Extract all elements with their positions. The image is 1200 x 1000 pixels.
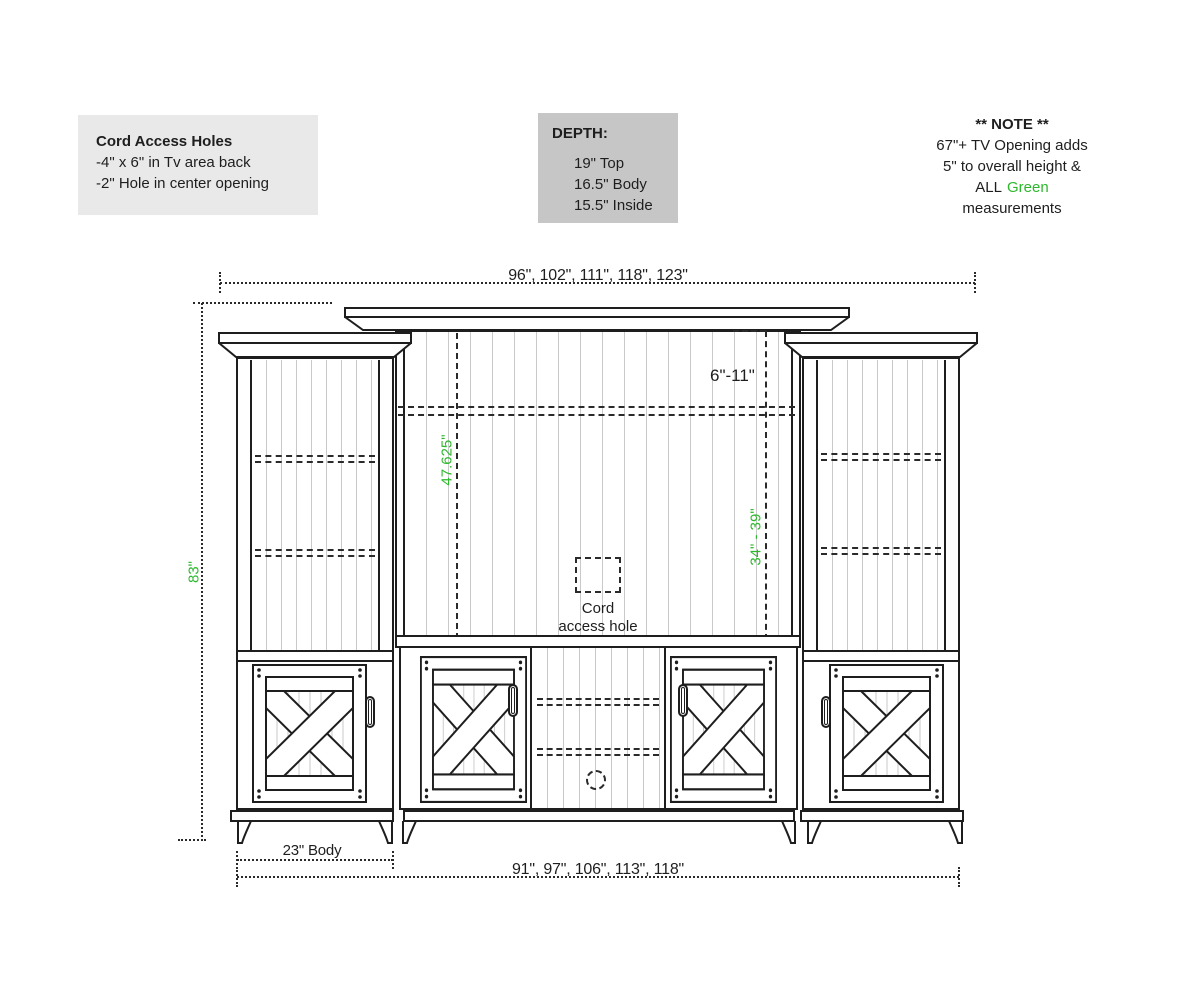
bridge-light-glow-left [434,332,550,390]
note-line-3: ALLGreen [900,177,1124,198]
dim-body-label: 23" Body [283,842,342,860]
depth-note-box: DEPTH: 19" Top 16.5" Body 15.5" Inside [538,113,678,223]
right-tower-barn-door [829,664,944,803]
dim-height-top-connector [193,302,332,304]
depth-line-1: 19" Top [574,153,664,174]
depth-line-3: 15.5" Inside [574,195,664,216]
right-tower-left-foot [807,821,822,844]
center-left-foot [402,821,417,844]
dim-tv-range-line [765,331,767,640]
center-base-rail [403,810,795,822]
center-shelf-dashed-1 [537,698,659,706]
right-tower-crown-molding [784,332,978,359]
entertainment-center-diagram: Cord Access Holes -4" x 6" in Tv area ba… [0,0,1200,1000]
note-line-1: 67"+ TV Opening adds [900,135,1124,156]
cord-access-hole-label-line2: access hole [558,618,637,636]
left-tower-crown-molding [218,332,412,359]
right-tower-shelf-dashed-2 [821,547,941,555]
left-tower-shelf-dashed-1 [255,455,375,463]
dim-top-width-tick-right [974,272,976,293]
dim-tv-opening-height-label: 47.625" [439,434,456,485]
cord-access-hole-label-line1: Cord [558,600,637,618]
center-left-door-handle [508,684,518,717]
center-right-barn-door [670,656,777,803]
dim-tv-range-top-tick [733,330,766,332]
left-tower-shelf-dashed-2 [255,549,375,557]
left-tower-base-rail [230,810,394,822]
left-tower-barn-door [252,664,367,803]
right-tower-light-glow [834,360,922,412]
center-right-door-handle [678,684,688,717]
note-line-3-green: Green [1007,179,1049,196]
tv-opening-note-block: ** NOTE ** 67"+ TV Opening adds 5" to ov… [900,114,1124,219]
dim-height-bottom-connector [178,839,206,841]
cord-access-line-2: -2" Hole in center opening [96,173,300,194]
dim-top-width-label: 96", 102", 111", 118", 123" [508,267,688,285]
right-tower-right-foot [948,821,963,844]
cord-access-hole-label: Cord access hole [558,600,637,636]
right-tower-base-rail [800,810,964,822]
note-line-4: measurements [900,198,1124,219]
dim-tv-range-label: 34" - 39" [748,508,765,565]
cord-access-note-box: Cord Access Holes -4" x 6" in Tv area ba… [78,115,318,215]
dim-top-width-tick-left [219,272,221,293]
center-left-barn-door [420,656,527,803]
left-tower-left-foot [237,821,252,844]
cord-access-hole-outline [575,557,621,593]
left-tower-divider-board [238,650,392,662]
right-tower-shelf-dashed-1 [821,453,941,461]
depth-title: DEPTH: [552,123,664,144]
right-tower-door-handle [821,696,831,728]
dim-top-gap-label: 6"-11" [710,366,755,386]
dim-bottom-width-label: 91", 97", 106", 113", 118" [512,861,684,879]
center-cord-hole-circle [586,770,606,790]
right-tower-divider-board [804,650,958,662]
dim-tv-opening-height-line [456,333,458,639]
cord-access-title: Cord Access Holes [96,131,300,152]
left-tower-light-glow [270,360,358,412]
bridge-crown-molding [344,307,850,332]
depth-line-2: 16.5" Body [574,174,664,195]
center-right-foot [781,821,796,844]
center-shelf-dashed-2 [537,748,659,756]
depth-spacer [552,144,664,153]
note-line-3-prefix: ALL [975,179,1002,196]
note-line-2: 5" to overall height & [900,156,1124,177]
left-tower-door-handle [365,696,375,728]
dim-height-label: 83" [186,561,203,583]
left-tower-right-foot [378,821,393,844]
note-title: ** NOTE ** [900,114,1124,135]
cord-access-line-1: -4" x 6" in Tv area back [96,152,300,173]
